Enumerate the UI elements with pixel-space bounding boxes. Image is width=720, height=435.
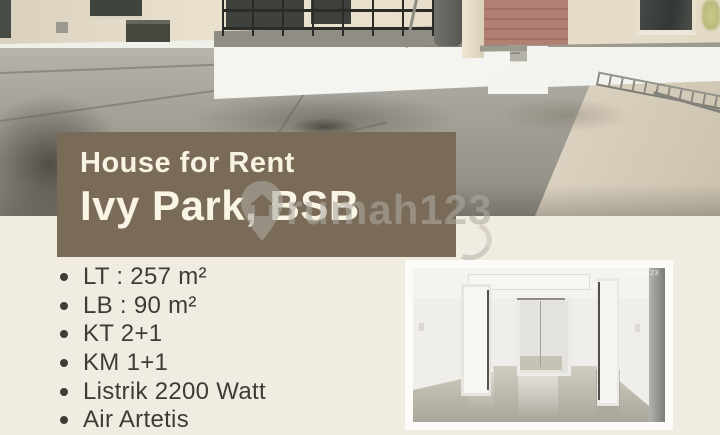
detail-item: LT : 257 m² <box>60 263 266 292</box>
doorway-header <box>517 298 565 300</box>
window <box>0 0 11 38</box>
floor-stain <box>500 98 630 132</box>
banner-title: House for Rent <box>80 147 456 180</box>
utility-box <box>56 22 68 33</box>
light-switch <box>419 323 424 331</box>
doorway-divider <box>540 301 541 367</box>
detail-item: Air Artetis <box>60 406 266 435</box>
detail-item: KM 1+1 <box>60 349 266 378</box>
window <box>90 0 142 19</box>
door <box>600 281 617 403</box>
foliage <box>702 0 720 30</box>
window-edge <box>649 268 665 422</box>
planter-box <box>126 20 170 42</box>
detail-text: LB : 90 m² <box>83 292 197 320</box>
interior-photo-frame: rumah123 <box>405 260 673 430</box>
detail-text: Listrik 2200 Watt <box>83 378 266 406</box>
garage-door <box>484 0 568 45</box>
bullet-dot <box>60 416 68 424</box>
door-edge <box>487 290 489 390</box>
detail-item: Listrik 2200 Watt <box>60 377 266 406</box>
doorway-floor <box>520 356 562 370</box>
detail-text: LT : 257 m² <box>83 263 207 291</box>
detail-item: KT 2+1 <box>60 320 266 349</box>
door-edge <box>598 282 600 400</box>
bullet-dot <box>60 388 68 396</box>
property-details-list: LT : 257 m² LB : 90 m² KT 2+1 KM 1+1 Lis… <box>60 263 266 435</box>
bullet-dot <box>60 273 68 281</box>
detail-text: KM 1+1 <box>83 349 168 377</box>
light-switch <box>635 324 640 332</box>
water-barrel <box>434 0 462 46</box>
bullet-dot <box>60 359 68 367</box>
interior-watermark-text: rumah123 <box>623 270 659 277</box>
watermark-text: rumah123 <box>286 186 492 234</box>
detail-text: Air Artetis <box>83 406 189 434</box>
door <box>464 287 488 393</box>
detail-text: KT 2+1 <box>83 320 162 348</box>
interior-photo: rumah123 <box>413 268 665 422</box>
bullet-dot <box>60 302 68 310</box>
map-pin-house-icon <box>238 180 286 242</box>
detail-item: LB : 90 m² <box>60 292 266 321</box>
listing-flyer: { "page": { "background_color": "#f1ece1… <box>0 0 720 420</box>
window <box>636 0 696 35</box>
bullet-dot <box>60 330 68 338</box>
